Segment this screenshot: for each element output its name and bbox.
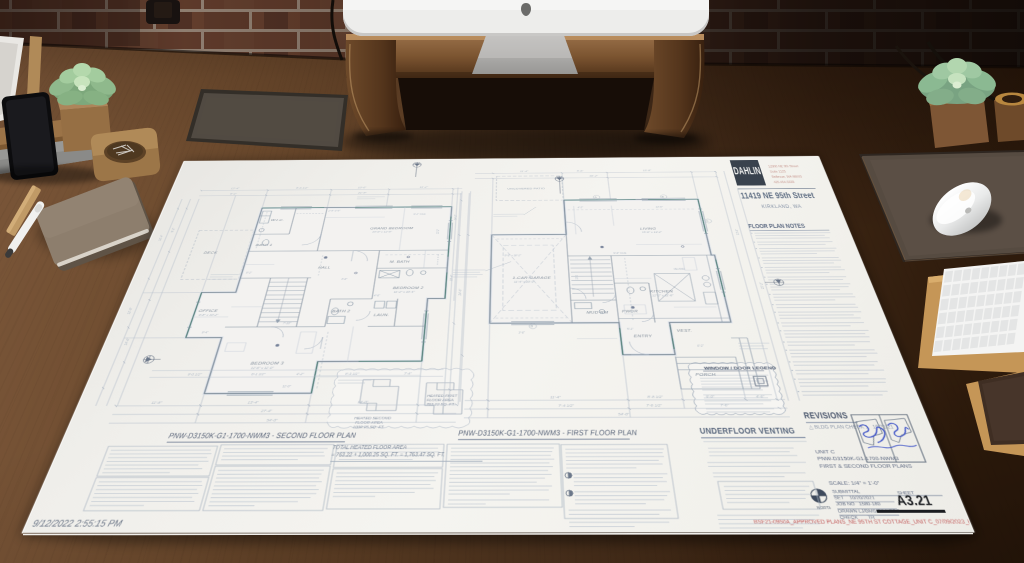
- svg-text:9'-0": 9'-0": [705, 394, 716, 399]
- svg-text:11'-2" x 10'-4": 11'-2" x 10'-4": [393, 291, 414, 294]
- svg-text:1-CAR GARAGE: 1-CAR GARAGE: [513, 276, 552, 280]
- svg-text:11'-4": 11'-4": [520, 170, 529, 173]
- svg-text:9'-1" CLG: 9'-1" CLG: [413, 214, 426, 216]
- svg-text:3'-0": 3'-0": [341, 279, 348, 281]
- svg-text:7'-8 1/2": 7'-8 1/2": [646, 403, 664, 408]
- svg-text:8'-3 1/2": 8'-3 1/2": [345, 373, 360, 377]
- svg-text:12'-2" x 11'-6": 12'-2" x 11'-6": [652, 294, 674, 297]
- svg-text:11'-0": 11'-0": [282, 386, 291, 388]
- svg-text:8'-6 1/2": 8'-6 1/2": [296, 186, 310, 189]
- svg-text:DECK: DECK: [203, 251, 219, 255]
- svg-text:BEDROOM 3: BEDROOM 3: [250, 361, 284, 366]
- svg-text:PWDR: PWDR: [622, 309, 639, 313]
- svg-text:11'-8": 11'-8": [151, 400, 165, 405]
- svg-text:15'-8": 15'-8": [643, 169, 653, 172]
- svg-text:PORCH: PORCH: [695, 372, 717, 377]
- svg-text:BATH 2: BATH 2: [332, 309, 351, 313]
- svg-text:40'-2": 40'-2": [589, 174, 599, 177]
- svg-text:15'-6" x 13'-2": 15'-6" x 13'-2": [642, 231, 663, 234]
- svg-text:D: D: [531, 326, 534, 328]
- svg-text:16'-4": 16'-4": [157, 234, 165, 241]
- svg-text:2'-8" 6'-8": 2'-8" 6'-8": [327, 211, 341, 213]
- svg-text:11'-4" x 20'-0": 11'-4" x 20'-0": [514, 281, 535, 284]
- svg-text:13 R: 13 R: [576, 275, 579, 280]
- svg-text:9'-8" x 10'-2": 9'-8" x 10'-2": [198, 314, 219, 317]
- svg-text:4'-2": 4'-2": [577, 207, 583, 209]
- svg-text:C: C: [706, 221, 709, 223]
- svg-text:7'-10": 7'-10": [282, 323, 291, 325]
- svg-text:W.I.C.: W.I.C.: [270, 218, 284, 221]
- svg-text:54'-0": 54'-0": [618, 412, 631, 417]
- svg-text:10'-0": 10'-0": [358, 186, 368, 189]
- svg-text:OFFICE: OFFICE: [198, 309, 219, 313]
- svg-text:8'-8 1/2": 8'-8 1/2": [647, 394, 665, 399]
- svg-text:5'-1": 5'-1": [627, 329, 634, 331]
- svg-text:4'-2": 4'-2": [296, 373, 304, 377]
- svg-text:B: B: [662, 197, 665, 199]
- svg-text:5'-2": 5'-2": [245, 273, 252, 275]
- svg-text:27'-4": 27'-4": [259, 408, 274, 413]
- svg-text:8'-6": 8'-6": [577, 169, 585, 172]
- svg-text:21'-8": 21'-8": [356, 191, 368, 194]
- svg-text:9'-2": 9'-2": [169, 227, 176, 232]
- svg-text:14'-0" x 12'-8": 14'-0" x 12'-8": [372, 231, 392, 234]
- svg-text:6'-1 1/2": 6'-1 1/2": [251, 373, 266, 377]
- svg-text:UNCOVERED PATIO: UNCOVERED PATIO: [507, 187, 545, 190]
- svg-text:14'-0": 14'-0": [357, 399, 370, 404]
- svg-text:LAUN.: LAUN.: [373, 313, 389, 317]
- svg-text:7'-4 1/2": 7'-4 1/2": [558, 403, 576, 408]
- svg-text:14'-2": 14'-2": [452, 214, 458, 221]
- svg-text:12'-8": 12'-8": [125, 306, 134, 314]
- svg-text:BATH 1: BATH 1: [255, 243, 273, 247]
- svg-text:ENTRY: ENTRY: [634, 334, 654, 339]
- svg-text:9'-0 1/2": 9'-0 1/2": [187, 373, 202, 377]
- svg-text:13'-4": 13'-4": [247, 400, 261, 405]
- svg-text:ISLAND: ISLAND: [674, 268, 686, 271]
- svg-text:4'-6": 4'-6": [374, 294, 381, 297]
- svg-text:LIVING: LIVING: [640, 227, 657, 231]
- svg-text:21'-2": 21'-2": [758, 281, 766, 290]
- svg-text:VEST.: VEST.: [676, 328, 692, 332]
- svg-text:24'-6": 24'-6": [457, 288, 463, 297]
- svg-text:12'-6" x 11'-0": 12'-6" x 11'-0": [250, 367, 274, 371]
- svg-text:7'-4": 7'-4": [404, 372, 412, 376]
- svg-text:11'-2": 11'-2": [420, 185, 430, 188]
- svg-text:9'-0" CLG: 9'-0" CLG: [613, 253, 627, 255]
- svg-text:12'-2": 12'-2": [437, 229, 440, 234]
- svg-text:4'-6": 4'-6": [755, 394, 767, 399]
- svg-text:11'-4": 11'-4": [550, 395, 562, 400]
- svg-text:A: A: [595, 196, 598, 198]
- svg-text:M. BATH: M. BATH: [389, 260, 410, 264]
- svg-text:6'-2": 6'-2": [697, 346, 704, 348]
- svg-text:6'-2": 6'-2": [230, 192, 239, 195]
- svg-text:BEDROOM 2: BEDROOM 2: [393, 286, 424, 290]
- svg-text:7'-6": 7'-6": [720, 403, 731, 408]
- svg-text:12'-6": 12'-6": [656, 207, 664, 209]
- svg-text:GRAND BEDROOM: GRAND BEDROOM: [370, 227, 413, 231]
- svg-text:14'-6": 14'-6": [122, 337, 132, 346]
- svg-text:9'-0" x 18'-2": 9'-0" x 18'-2": [504, 255, 521, 257]
- svg-text:13'-6": 13'-6": [733, 228, 740, 235]
- svg-text:KITCHEN: KITCHEN: [650, 289, 674, 293]
- svg-text:MUD RM: MUD RM: [586, 310, 608, 314]
- svg-text:3'-6": 3'-6": [518, 332, 525, 334]
- svg-text:12'-4": 12'-4": [230, 187, 241, 190]
- svg-text:54'-0": 54'-0": [266, 418, 280, 423]
